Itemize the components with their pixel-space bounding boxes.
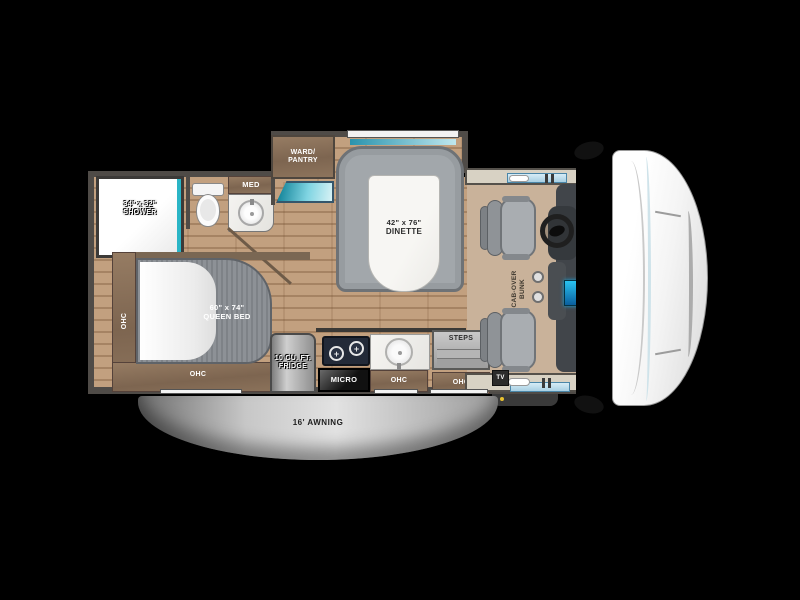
kitchen-sink (385, 338, 413, 366)
cab-top-wall (465, 168, 580, 185)
wall-bath-right-stub (271, 177, 275, 205)
dinette-label: 42" x 76" DINETTE (369, 218, 439, 237)
med-label: MED (242, 181, 260, 190)
rv-floorplan-diagram: 34" x 32" SHOWER MED WARD/ PANTRY 42" x … (0, 0, 800, 600)
seat-armrest-bottom (502, 254, 530, 260)
vanity-counter (228, 194, 274, 232)
ohc-left-label: OHC (121, 281, 129, 361)
steering-wheel (540, 214, 574, 248)
dinette-table: 42" x 76" DINETTE (368, 175, 440, 292)
vanity-sink (238, 200, 264, 226)
sink-counter (370, 334, 430, 370)
door-latch-bottom (542, 378, 545, 388)
door-handle-bottom (508, 378, 530, 386)
microwave: MICRO (318, 368, 370, 392)
wall-left (88, 171, 94, 393)
ohc-left-text: OHC (121, 313, 128, 329)
cooktop: + + (322, 336, 370, 366)
door-latch-top-2 (551, 174, 554, 183)
window-trim-1 (160, 389, 242, 394)
hood-blue-edge (641, 157, 651, 401)
passenger-seat (480, 308, 536, 372)
wall-shower-toilet (186, 177, 190, 229)
sink-drain (398, 351, 402, 355)
queen-bed: 60" x 74" QUEEN BED (136, 258, 272, 364)
window-trim-2 (374, 389, 418, 394)
door-handle-top (509, 175, 529, 182)
steering-hub (548, 224, 566, 239)
seat-cushion (500, 198, 536, 258)
seat-armrest-top (502, 196, 530, 202)
shower-name: SHOWER (123, 209, 156, 217)
burner-glyph: + (354, 344, 359, 354)
awning-label: 16' AWNING (293, 418, 344, 428)
hood-chrome-accent (683, 211, 693, 357)
med-cabinet: MED (228, 176, 274, 194)
step-tread-2 (437, 358, 485, 368)
ward-line1: WARD/ (291, 149, 316, 157)
dinette-window-teal (350, 139, 456, 145)
door-latch-top (545, 174, 548, 183)
hood (612, 150, 708, 406)
bunk-line2: BUNK (519, 279, 527, 299)
shower: 34" x 32" SHOWER (96, 176, 184, 258)
toilet-bowl (196, 194, 220, 227)
dinette-window (347, 130, 459, 138)
shower-label: 34" x 32" SHOWER (105, 201, 175, 217)
dinette-name: DINETTE (386, 227, 422, 237)
ohc-bed-text: OHC (190, 371, 206, 379)
awning: 16' AWNING (138, 396, 498, 460)
seat-cushion (500, 310, 536, 370)
micro-label: MICRO (331, 376, 358, 385)
dinette-size: 42" x 76" (387, 218, 422, 227)
cab-over-bunk-label: CAB-OVER BUNK (496, 264, 542, 314)
ward-line2: PANTRY (288, 157, 318, 165)
ohc-kitchen-label: OHC (391, 377, 407, 385)
door-latch-bottom-2 (548, 378, 551, 388)
toilet-seat (200, 199, 216, 221)
hood-seam-bottom (655, 349, 681, 355)
bunk-line1: CAB-OVER (511, 270, 519, 307)
step-light-dot (500, 397, 504, 401)
tv: TV (492, 370, 509, 386)
sink-faucet (250, 199, 254, 205)
burner-glyph: + (334, 349, 339, 359)
bed-name: QUEEN BED (203, 313, 250, 322)
bed-label: 60" x 74" QUEEN BED (182, 304, 272, 321)
driver-seat (480, 196, 536, 260)
window-trim-3 (430, 389, 488, 394)
ohc-bed-label: OHC (113, 371, 283, 379)
fridge-line2: FRIDGE (279, 363, 307, 371)
shower-glass-teal (177, 179, 181, 255)
fridge-line1: 10 CU. FT. (275, 355, 311, 363)
ward-pantry-cabinet: WARD/ PANTRY (271, 135, 335, 179)
tv-label: TV (496, 375, 504, 382)
burner-right-icon: + (349, 341, 364, 356)
step-tread-1 (437, 349, 485, 358)
sink-drain (250, 212, 254, 216)
burner-left-icon: + (329, 346, 344, 361)
hood-seam-top (655, 211, 681, 217)
shower-size: 34" x 32" (124, 201, 157, 209)
fridge: 10 CU. FT. FRIDGE (270, 333, 316, 393)
